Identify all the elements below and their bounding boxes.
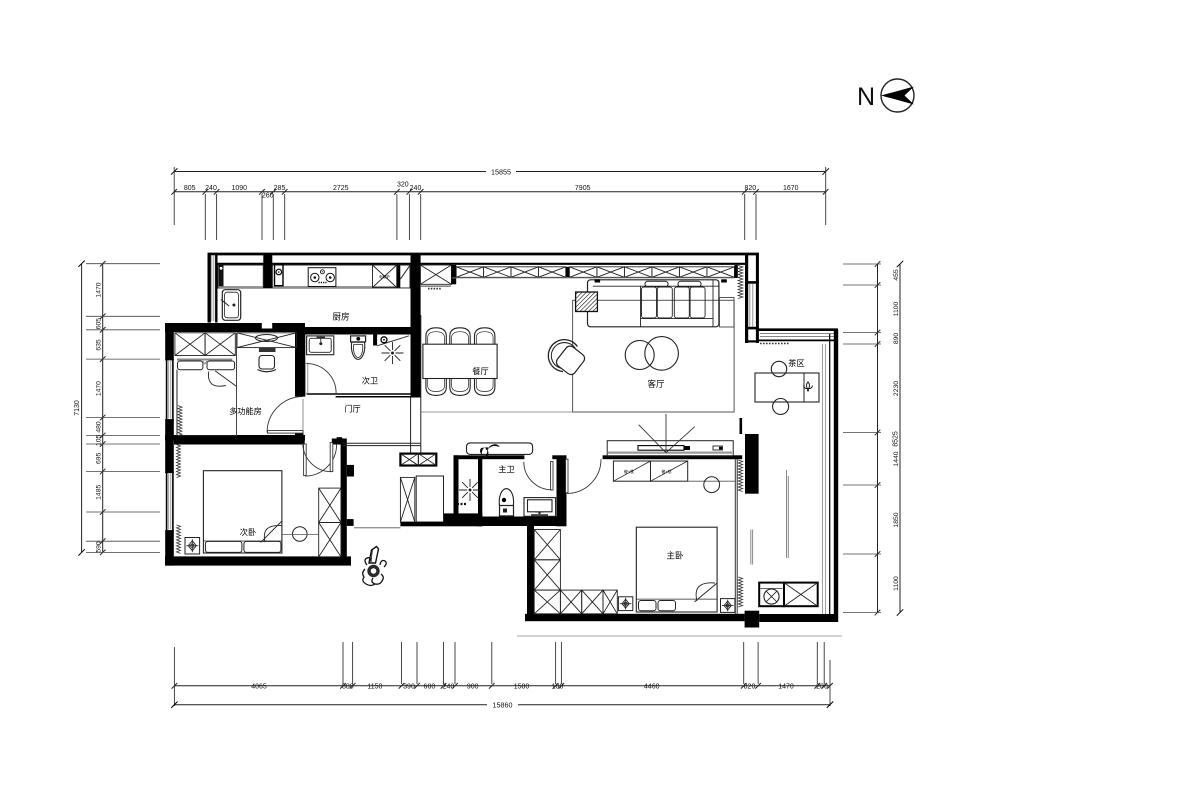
svg-text:主卧: 主卧: [666, 551, 684, 561]
svg-text:15855: 15855: [491, 167, 511, 176]
svg-text:2230: 2230: [893, 381, 900, 396]
svg-text:680: 680: [424, 684, 436, 691]
svg-text:8525: 8525: [893, 431, 900, 447]
svg-text:240: 240: [410, 185, 422, 192]
svg-text:900: 900: [467, 684, 479, 691]
svg-text:1090: 1090: [232, 185, 248, 192]
svg-text:320: 320: [397, 182, 409, 189]
svg-text:605: 605: [95, 318, 102, 330]
svg-text:餐厅: 餐厅: [472, 367, 488, 376]
svg-text:390: 390: [403, 684, 415, 691]
svg-text:200: 200: [816, 684, 828, 691]
svg-text:260: 260: [262, 193, 274, 200]
svg-text:次卧: 次卧: [240, 527, 256, 537]
svg-text:100: 100: [552, 684, 564, 691]
svg-text:635: 635: [95, 339, 102, 351]
svg-text:820: 820: [744, 684, 756, 691]
svg-text:880: 880: [342, 684, 354, 691]
svg-text:695: 695: [95, 452, 102, 464]
svg-text:455: 455: [893, 269, 900, 281]
svg-text:1670: 1670: [783, 185, 799, 192]
svg-text:4460: 4460: [644, 684, 660, 691]
svg-text:电磁炉: 电磁炉: [379, 274, 390, 279]
svg-text:次卫: 次卫: [362, 376, 378, 386]
svg-text:805: 805: [184, 185, 196, 192]
svg-text:客厅: 客厅: [647, 379, 665, 389]
svg-text:1470: 1470: [95, 381, 102, 396]
svg-text:890: 890: [893, 333, 900, 345]
svg-text:门厅: 门厅: [344, 404, 360, 414]
svg-text:1850: 1850: [893, 512, 900, 527]
svg-text:105: 105: [95, 434, 102, 446]
svg-text:1470: 1470: [778, 684, 794, 691]
svg-text:820: 820: [744, 185, 756, 192]
svg-text:多功能房: 多功能房: [229, 406, 262, 416]
svg-text:1485: 1485: [95, 485, 102, 500]
svg-text:茶区: 茶区: [788, 358, 804, 368]
svg-text:590: 590: [95, 541, 102, 553]
svg-text:1470: 1470: [95, 282, 102, 297]
svg-text:厨房: 厨房: [332, 312, 349, 322]
svg-text:被+枕: 被+枕: [661, 468, 671, 474]
svg-text:2725: 2725: [333, 185, 349, 192]
svg-text:7130: 7130: [74, 400, 81, 416]
svg-text:240: 240: [205, 185, 217, 192]
svg-text:被+枕: 被+枕: [624, 468, 634, 474]
svg-text:480: 480: [95, 421, 102, 433]
svg-text:1100: 1100: [893, 576, 900, 591]
svg-text:285: 285: [274, 185, 286, 192]
svg-text:1150: 1150: [367, 684, 382, 691]
svg-text:1580: 1580: [514, 684, 530, 691]
svg-text:N: N: [857, 83, 875, 111]
svg-text:1440: 1440: [893, 451, 900, 466]
svg-text:15860: 15860: [493, 700, 513, 709]
svg-text:主卫: 主卫: [498, 464, 514, 474]
svg-text:4065: 4065: [251, 684, 267, 691]
svg-text:240: 240: [443, 684, 455, 691]
svg-text:1100: 1100: [893, 301, 900, 316]
svg-text:7905: 7905: [575, 185, 591, 192]
